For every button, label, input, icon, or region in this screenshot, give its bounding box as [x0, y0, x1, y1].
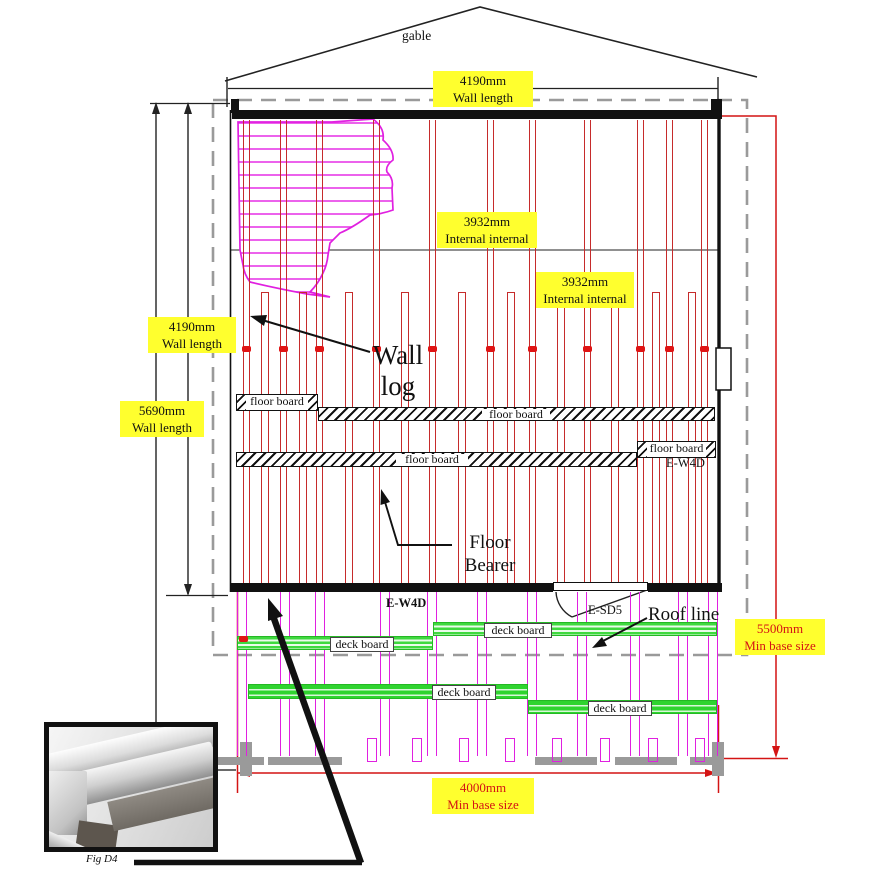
- floor-bearer-arrow: [385, 502, 452, 545]
- e-sd5-label: E-SD5: [588, 603, 622, 618]
- dim-value: 4190mm: [435, 72, 531, 89]
- floor-bearer-line1: Floor: [445, 531, 535, 554]
- wall-log-dot: [636, 346, 645, 352]
- foundation-beam: [535, 757, 597, 765]
- cabin-plan-diagram: floor board floor board floor board floo…: [0, 0, 886, 872]
- wall-log-callout: Wall log: [363, 340, 433, 402]
- deck-post: [367, 738, 377, 762]
- dim-value: 5500mm: [737, 620, 823, 637]
- wall-log-half-line: [261, 292, 269, 583]
- deck-bearer-line: [237, 592, 247, 756]
- dim-top-wall-label: 4190mm Wall length: [433, 71, 533, 107]
- dim-caption: Wall length: [435, 89, 531, 106]
- deck-bearer-line: [380, 592, 390, 756]
- dim-internal-lower-label: 3932mm Internal internal: [536, 272, 634, 308]
- door-panel: [553, 582, 648, 591]
- deck-bearer-line: [477, 592, 487, 756]
- dim-left-outer-label: 5690mm Wall length: [120, 401, 204, 437]
- dim-value: 4190mm: [150, 318, 234, 335]
- e-w4d-bottom-label: E-W4D: [386, 596, 426, 611]
- roof-line-callout: Roof line: [648, 604, 719, 626]
- deck-bearer-line: [280, 592, 290, 756]
- deck-post: [505, 738, 515, 762]
- dim-caption: Wall length: [150, 335, 234, 352]
- dim-caption: Min base size: [737, 637, 823, 654]
- deck-red-dot: [239, 636, 248, 642]
- foundation-beam: [268, 757, 342, 765]
- wall-log-half-line: [688, 292, 696, 583]
- wall-log-line2: log: [363, 371, 433, 402]
- wall-log-half-line: [401, 292, 409, 583]
- wall-log-dot: [279, 346, 288, 352]
- dim-left-wall-label: 4190mm Wall length: [148, 317, 236, 353]
- bottom-wall-bar-right: [648, 583, 722, 592]
- deck-post: [552, 738, 562, 762]
- gable-label: gable: [402, 28, 431, 44]
- deck-board-label: deck board: [432, 685, 496, 700]
- wall-log-dot: [528, 346, 537, 352]
- bottom-wall-bar-left: [230, 583, 553, 592]
- dim-value: 5690mm: [122, 402, 202, 419]
- deck-bearer-line: [577, 592, 587, 756]
- wall-log-dot: [242, 346, 251, 352]
- wall-log-half-line: [611, 292, 619, 583]
- deck-bearer-line: [527, 592, 537, 756]
- wall-log-half-line: [557, 292, 565, 583]
- dim-value: 4000mm: [434, 779, 532, 796]
- foundation-beam: [615, 757, 677, 765]
- deck-post: [695, 738, 705, 762]
- dim-value: 3932mm: [538, 273, 632, 290]
- floor-board-label-box: floor board: [236, 394, 318, 411]
- deck-board-label: deck board: [330, 637, 394, 652]
- deck-bearer-line: [315, 592, 325, 756]
- dim-value: 3932mm: [439, 213, 535, 230]
- deck-post: [412, 738, 422, 762]
- deck-board-label: deck board: [484, 623, 552, 638]
- deck-post: [648, 738, 658, 762]
- wall-log-dot: [315, 346, 324, 352]
- wall-log-half-line: [652, 292, 660, 583]
- wall-log-line1: Wall: [363, 340, 433, 371]
- wall-log-dot: [486, 346, 495, 352]
- floor-board-label: floor board: [482, 409, 550, 420]
- floor-board-label: floor board: [396, 454, 468, 466]
- deck-bearer-line: [427, 592, 437, 756]
- wall-log-half-line: [345, 292, 353, 583]
- wall-log-dot: [665, 346, 674, 352]
- dim-right-base-label: 5500mm Min base size: [735, 619, 825, 655]
- inset-photo: [44, 722, 218, 852]
- floor-bearer-line2: Bearer: [445, 554, 535, 577]
- gable-roof-line: [225, 7, 757, 81]
- dim-caption: Wall length: [122, 419, 202, 436]
- inset-caption: Fig D4: [86, 853, 117, 865]
- dim-caption: Min base size: [434, 796, 532, 813]
- deck-post: [600, 738, 610, 762]
- deck-board-label: deck board: [588, 701, 652, 716]
- dim-caption: Internal internal: [439, 230, 535, 247]
- deck-post: [459, 738, 469, 762]
- dim-internal-upper-label: 3932mm Internal internal: [437, 212, 537, 248]
- dim-bottom-base-label: 4000mm Min base size: [432, 778, 534, 814]
- wall-log-dot: [583, 346, 592, 352]
- floor-bearer-callout: Floor Bearer: [445, 531, 535, 577]
- wall-log-dot: [700, 346, 709, 352]
- deck-bearer-line: [630, 592, 640, 756]
- door-swing-arc: [556, 592, 572, 617]
- right-wall-window-marker: [716, 348, 731, 390]
- e-w4d-right-label: E-W4D: [666, 456, 705, 471]
- top-wall-bar: [232, 110, 722, 119]
- dim-caption: Internal internal: [538, 290, 632, 307]
- wall-log-half-line: [299, 292, 307, 583]
